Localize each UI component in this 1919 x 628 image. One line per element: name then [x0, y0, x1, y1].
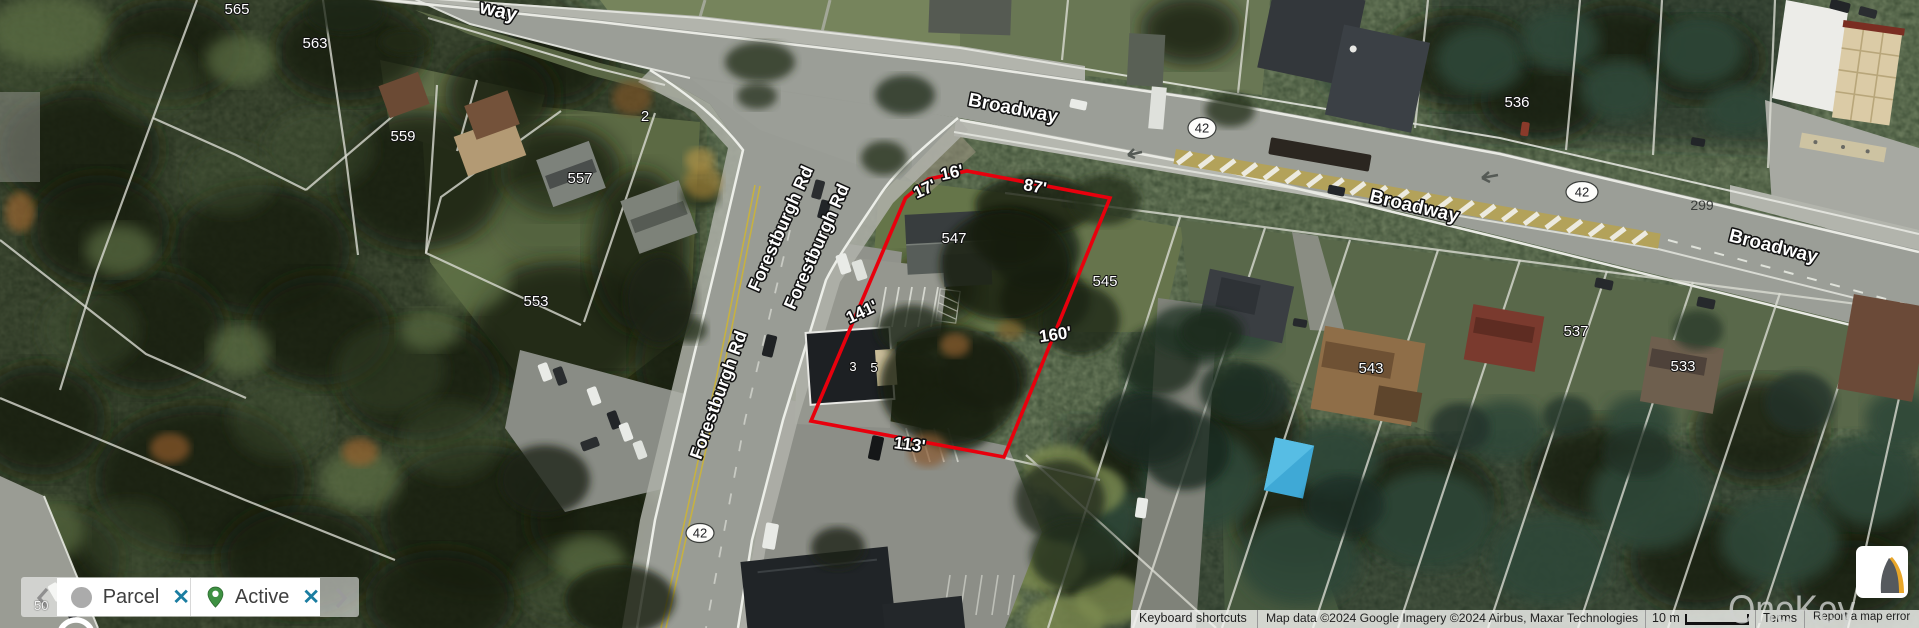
- svg-text:113': 113': [893, 433, 927, 456]
- svg-text:299: 299: [1690, 197, 1714, 213]
- svg-text:537: 537: [1563, 323, 1588, 340]
- svg-text:553: 553: [523, 293, 548, 310]
- svg-text:547: 547: [941, 230, 966, 247]
- svg-text:5: 5: [870, 360, 877, 375]
- svg-text:557: 557: [567, 170, 592, 187]
- svg-text:3: 3: [849, 359, 856, 374]
- svg-text:545: 545: [1092, 273, 1117, 290]
- svg-text:543: 543: [1358, 360, 1383, 377]
- svg-text:42: 42: [693, 526, 707, 541]
- svg-text:42: 42: [1195, 121, 1209, 136]
- svg-text:2: 2: [641, 108, 649, 125]
- svg-text:533: 533: [1670, 358, 1695, 375]
- svg-text:42: 42: [1575, 185, 1589, 200]
- svg-text:536: 536: [1504, 94, 1529, 111]
